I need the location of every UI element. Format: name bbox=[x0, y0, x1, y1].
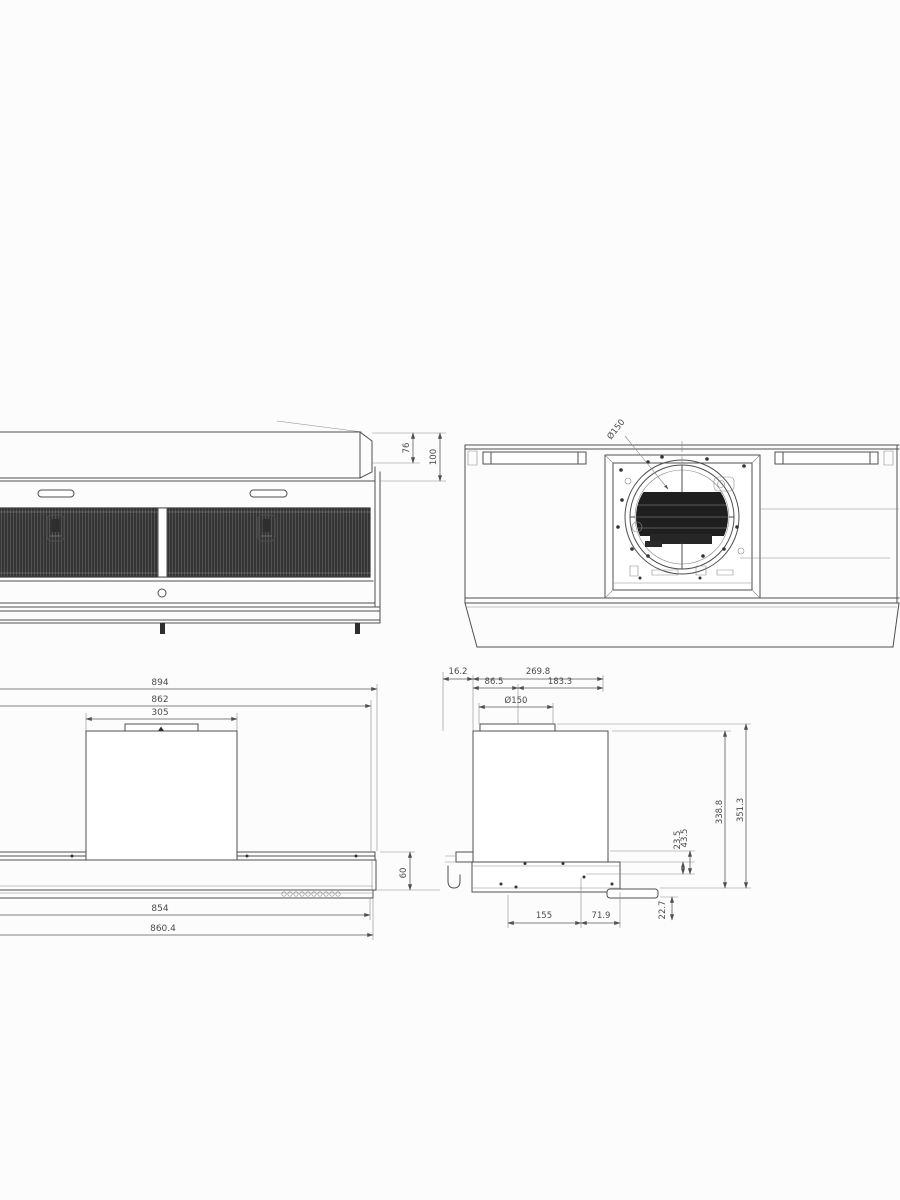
vent-slot-left bbox=[38, 490, 74, 497]
dim-71-9: 71.9 bbox=[592, 911, 611, 921]
dim-269-8: 269.8 bbox=[526, 667, 550, 677]
dim-183-3: 183.3 bbox=[548, 677, 572, 687]
vent-slot-right bbox=[250, 490, 287, 497]
dim-351-3: 351.3 bbox=[736, 798, 746, 822]
dim-22-7: 22.7 bbox=[658, 901, 668, 920]
feet-pegs bbox=[160, 623, 360, 634]
dim-860-4: 860.4 bbox=[150, 924, 176, 934]
front-lip-bar bbox=[607, 889, 658, 898]
right-end-cap bbox=[375, 467, 380, 623]
side-view: 16.2 269.8 86.5 183.3 Ø150 338.8 351.3 2… bbox=[443, 667, 751, 928]
front-perspective-view: 76 100 bbox=[0, 421, 446, 634]
body-band bbox=[0, 860, 376, 890]
top-box-side bbox=[360, 432, 372, 478]
filter-divider bbox=[158, 508, 167, 577]
wall-bracket bbox=[443, 672, 473, 888]
dim-894: 894 bbox=[151, 678, 168, 688]
bottom-view: 894 862 305 60 854 bbox=[0, 678, 440, 940]
bottom-rail bbox=[0, 611, 380, 623]
mounting-bracket-right bbox=[775, 452, 878, 464]
duct-collar bbox=[480, 724, 555, 731]
technical-drawing-page: 76 100 bbox=[0, 0, 900, 1200]
bottom-slab bbox=[472, 862, 620, 892]
dim-305: 305 bbox=[151, 708, 168, 718]
control-buttons-strip bbox=[282, 892, 340, 896]
dim-43-5: 43.5 bbox=[680, 829, 690, 848]
dim-86-5: 86.5 bbox=[485, 677, 504, 687]
bottom-dims-ext bbox=[370, 898, 373, 940]
dim-338-8: 338.8 bbox=[715, 800, 725, 824]
dim-100: 100 bbox=[429, 449, 439, 465]
mounting-bracket-left bbox=[483, 452, 586, 464]
chimney-duct-box bbox=[86, 731, 237, 860]
glass-front-band bbox=[0, 890, 373, 898]
dim-862: 862 bbox=[151, 695, 168, 705]
side-body bbox=[473, 731, 608, 862]
technical-drawing: 76 100 bbox=[0, 0, 900, 1200]
duct-diameter-label: Ø150 bbox=[605, 417, 628, 442]
body-band-inner bbox=[0, 860, 373, 890]
front-apron bbox=[465, 603, 899, 647]
rating-label bbox=[645, 541, 662, 547]
top-box-face bbox=[0, 432, 360, 478]
top-view: Ø150 bbox=[465, 417, 899, 647]
dim-854: 854 bbox=[151, 904, 168, 914]
dim-76: 76 bbox=[402, 443, 412, 454]
dim-150: Ø150 bbox=[505, 695, 528, 706]
lower-band-lines bbox=[0, 581, 380, 607]
top-box-back-edge bbox=[277, 421, 362, 432]
lamp-button bbox=[158, 589, 166, 597]
dim-60: 60 bbox=[399, 868, 409, 879]
grease-filter-panel bbox=[0, 508, 370, 577]
dim-155: 155 bbox=[536, 911, 552, 921]
dim-16-2: 16.2 bbox=[449, 667, 468, 677]
